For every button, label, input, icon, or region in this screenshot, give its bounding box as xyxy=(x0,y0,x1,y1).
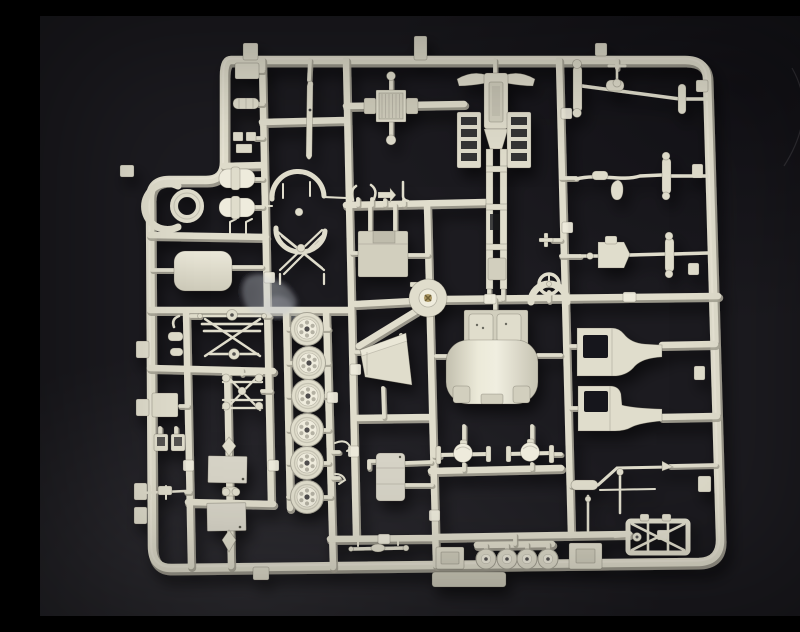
engine-box xyxy=(358,231,420,298)
small-trailer-wheel xyxy=(476,549,496,569)
fender-arch-set xyxy=(268,171,346,284)
cab-side-panels xyxy=(577,328,662,431)
front-axle-1 xyxy=(573,60,708,118)
leaf-spring-set-1 xyxy=(198,310,267,360)
small-trailer-wheel xyxy=(538,549,558,569)
small-fittings-left xyxy=(168,316,183,356)
front-axle-2 xyxy=(576,152,707,200)
hood-panel xyxy=(174,251,232,291)
fuel-tank xyxy=(376,453,405,501)
road-wheel xyxy=(291,447,324,480)
sprue-drawing xyxy=(40,16,800,616)
road-wheel xyxy=(292,380,325,413)
road-wheel xyxy=(293,347,326,380)
cylinder-tanks xyxy=(219,167,255,219)
small-trailer-wheel xyxy=(497,549,517,569)
valve-cross-part xyxy=(539,233,553,247)
small-trailer-wheel xyxy=(517,549,537,569)
spring-blade xyxy=(306,81,313,159)
sprue-photo: Overhead photograph of an ivory styrene … xyxy=(40,16,800,616)
road-wheel xyxy=(291,481,324,514)
sprue xyxy=(120,36,722,587)
road-wheel xyxy=(291,313,324,346)
road-wheel xyxy=(291,414,324,447)
road-wheels xyxy=(291,313,326,514)
differential-axles xyxy=(436,439,554,464)
moulding-hub-gate xyxy=(409,279,447,317)
cab-rear-and-bonnet xyxy=(446,310,538,404)
background-scratch xyxy=(784,68,800,166)
